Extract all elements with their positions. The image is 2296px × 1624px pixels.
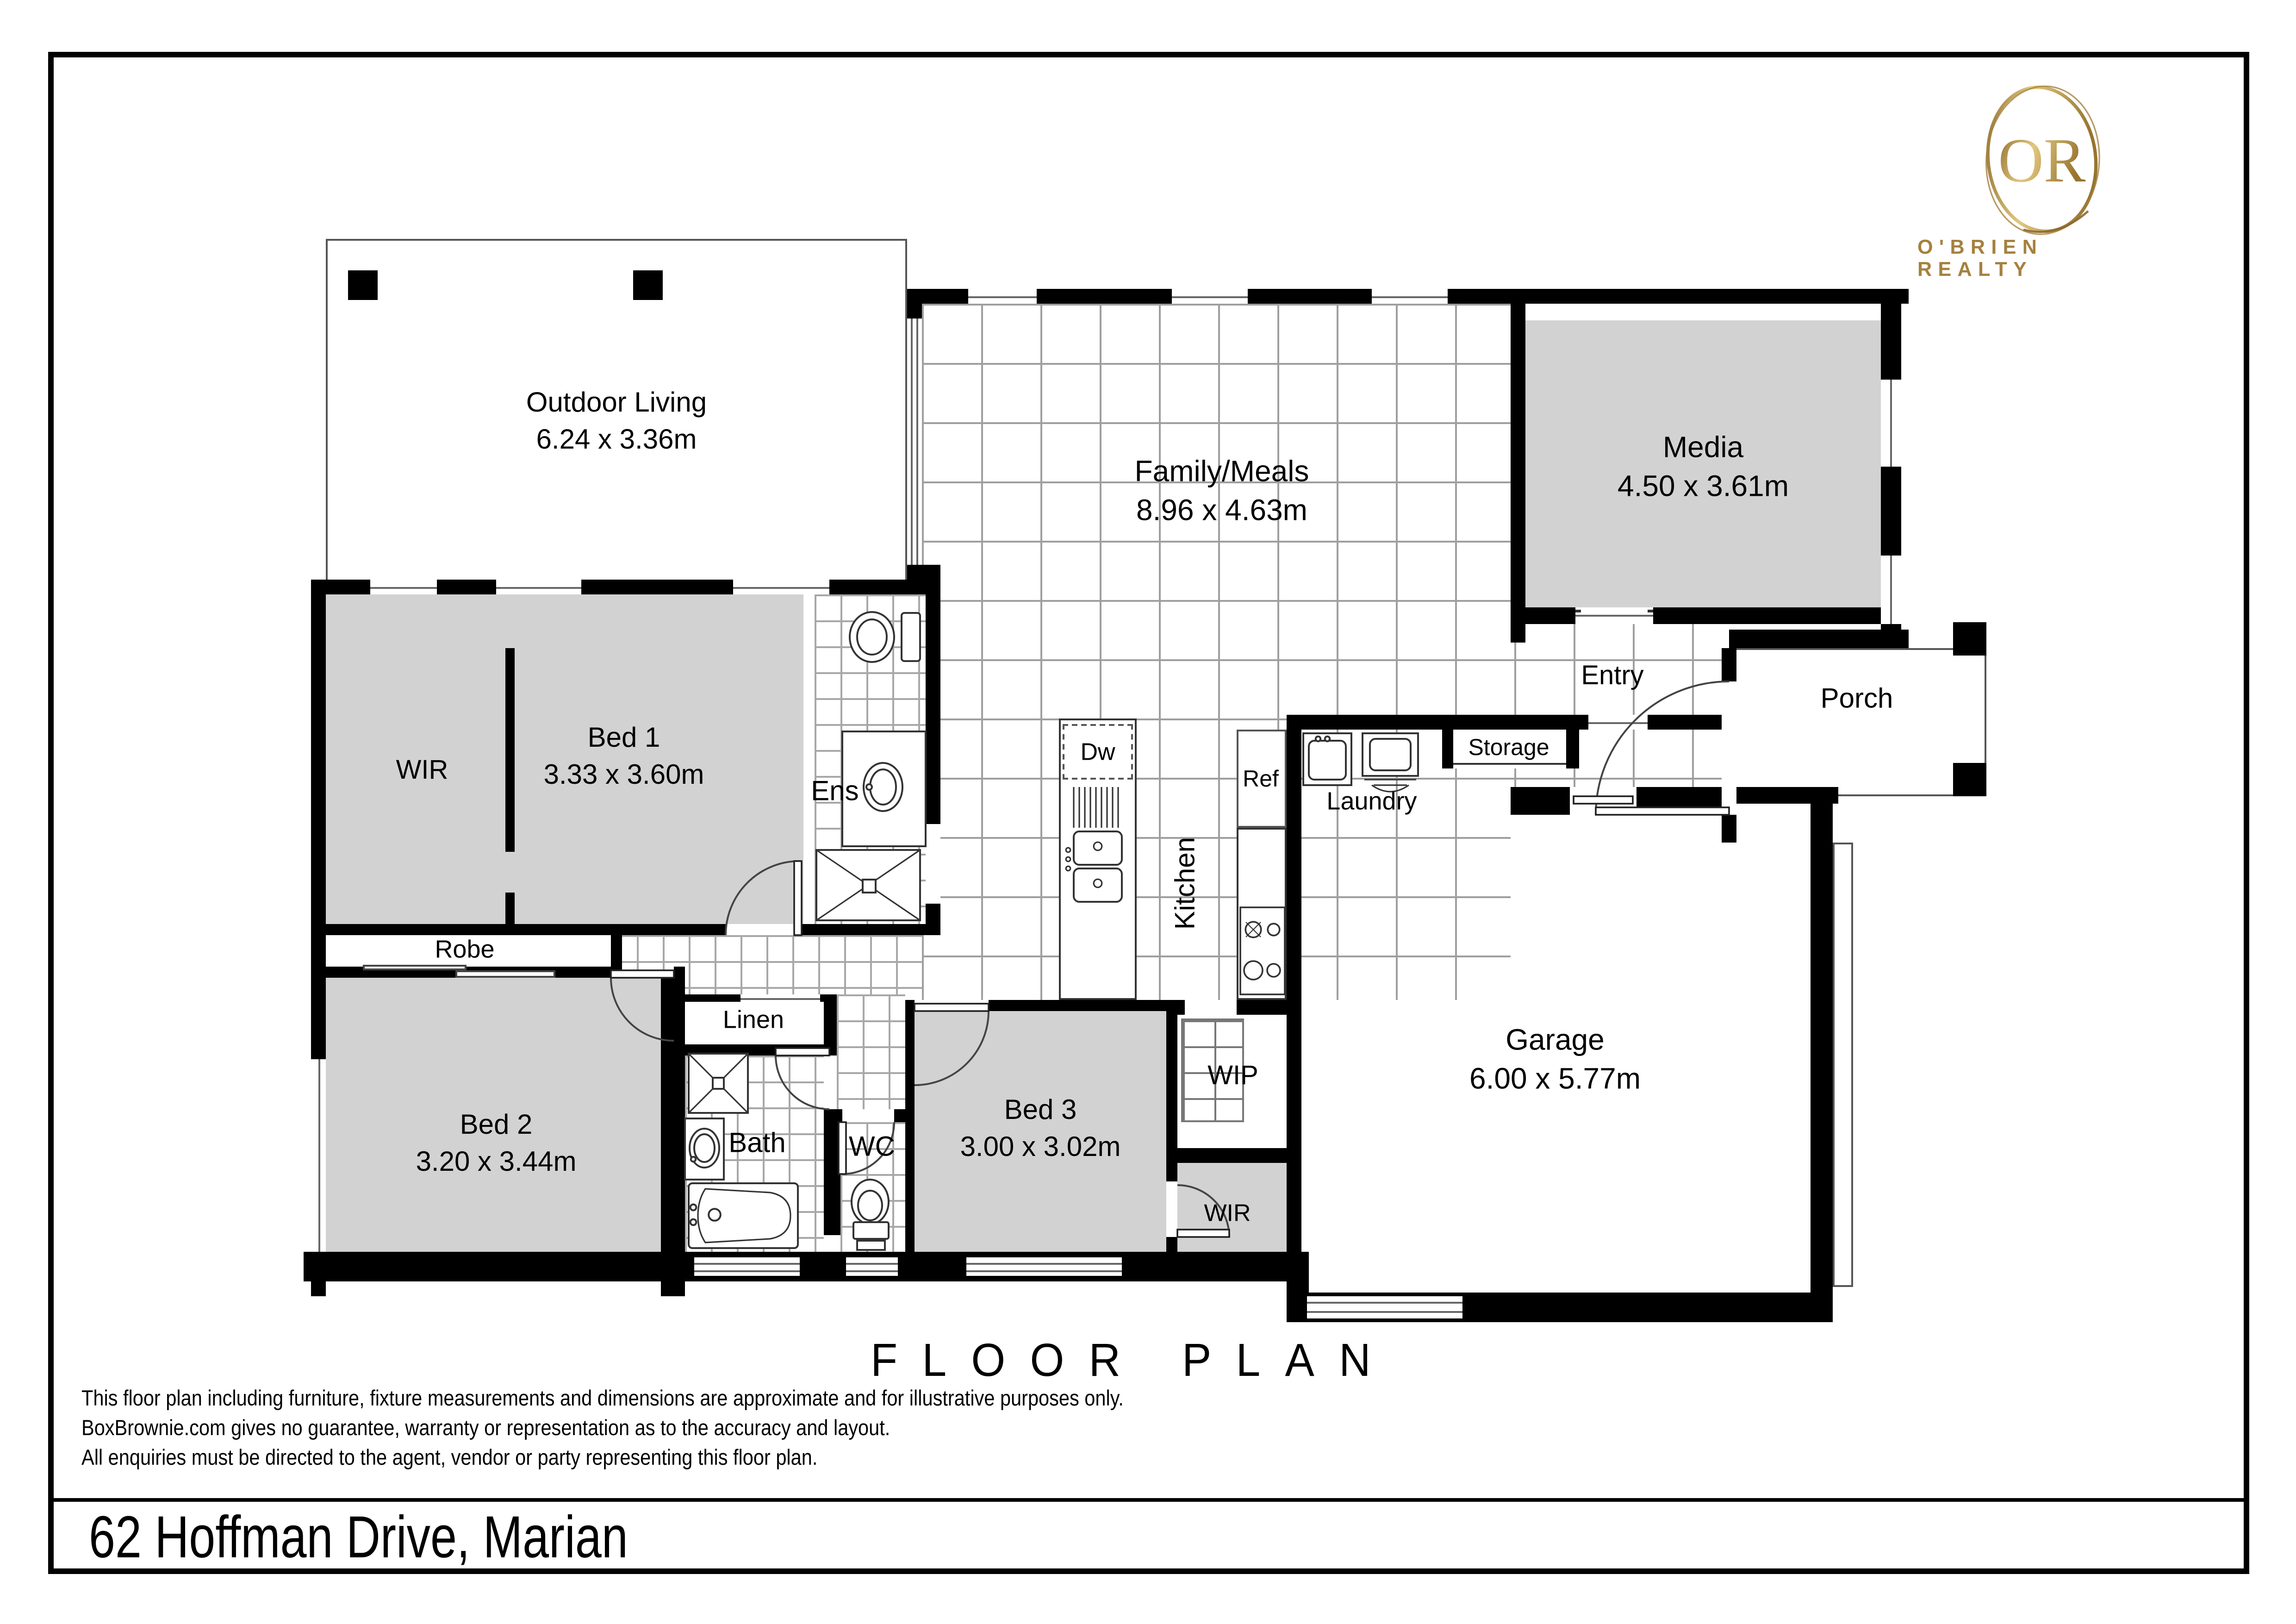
wc-door-leaf bbox=[839, 1122, 846, 1174]
room-label-porch: Porch bbox=[1821, 681, 1893, 718]
front-door-arc bbox=[1596, 681, 1729, 815]
bed2-door-arc bbox=[611, 978, 674, 1041]
room-label-bed2: Bed 2 3.20 x 3.44m bbox=[416, 1108, 577, 1181]
room-dims: 6.00 x 5.77m bbox=[1469, 1061, 1641, 1100]
room-label-wc: WC bbox=[849, 1130, 895, 1166]
disclaimer-line: This floor plan including furniture, fix… bbox=[81, 1385, 1124, 1414]
room-label-bath: Bath bbox=[728, 1126, 785, 1162]
room-label-storage: Storage bbox=[1468, 733, 1549, 763]
room-dims: 6.24 x 3.36m bbox=[526, 422, 707, 459]
disclaimer-line: BoxBrownie.com gives no guarantee, warra… bbox=[81, 1414, 1124, 1443]
room-name: Bed 1 bbox=[544, 721, 704, 757]
room-label-bed1: Bed 1 3.33 x 3.60m bbox=[544, 721, 704, 794]
room-name: Garage bbox=[1469, 1022, 1641, 1061]
disclaimer-line: All enquiries must be directed to the ag… bbox=[81, 1443, 1124, 1473]
bed2-door-leaf bbox=[611, 970, 674, 978]
cooktop bbox=[1240, 907, 1285, 994]
room-name: Bed 3 bbox=[960, 1093, 1121, 1130]
room-label-linen: Linen bbox=[723, 1004, 784, 1037]
room-label-garage: Garage 6.00 x 5.77m bbox=[1469, 1022, 1641, 1100]
bathtub-faucet bbox=[709, 1209, 721, 1221]
room-name: Family/Meals bbox=[1135, 454, 1309, 493]
bed3-door-arc bbox=[915, 1011, 989, 1085]
floor-plan-page: Outdoor Living 6.24 x 3.36m Family/Meals… bbox=[0, 0, 2296, 1624]
room-label-dw: Dw bbox=[1080, 736, 1115, 768]
room-label-outdoor-living: Outdoor Living 6.24 x 3.36m bbox=[526, 386, 707, 459]
disclaimer-text: This floor plan including furniture, fix… bbox=[81, 1385, 1124, 1473]
room-label-laundry: Laundry bbox=[1326, 785, 1417, 818]
wc-toilet-tank bbox=[853, 1222, 889, 1239]
room-dims: 4.50 x 3.61m bbox=[1618, 468, 1789, 507]
front-door-leaf bbox=[1596, 807, 1729, 815]
ens-toilet-tank bbox=[902, 613, 920, 661]
room-dims: 3.00 x 3.02m bbox=[960, 1130, 1121, 1166]
room-dims: 8.96 x 4.63m bbox=[1135, 493, 1309, 531]
kitchen-sink-bowl bbox=[1074, 831, 1122, 865]
room-label-robe: Robe bbox=[435, 933, 494, 966]
room-label-ens: Ens bbox=[811, 774, 859, 811]
wir3-door-leaf bbox=[1177, 1230, 1229, 1237]
logo-wordmark: O'BRIEN REALTY bbox=[1917, 237, 2166, 281]
bed1-door-leaf bbox=[794, 861, 802, 935]
room-label-kitchen: Kitchen bbox=[1168, 837, 1205, 930]
room-label-bed3: Bed 3 3.00 x 3.02m bbox=[960, 1093, 1121, 1166]
room-label-family-meals: Family/Meals 8.96 x 4.63m bbox=[1135, 454, 1309, 532]
garage-internal-door-leaf bbox=[1574, 796, 1633, 804]
room-dims: 3.20 x 3.44m bbox=[416, 1144, 577, 1181]
room-label-wir-bed1: WIR bbox=[396, 755, 448, 790]
bath-door-leaf bbox=[776, 1048, 829, 1056]
room-label-media: Media 4.50 x 3.61m bbox=[1618, 430, 1789, 508]
room-label-wir-bed3: WIR bbox=[1204, 1197, 1251, 1229]
room-name: Media bbox=[1618, 430, 1789, 468]
address-divider-line bbox=[48, 1498, 2249, 1502]
room-label-wip: WIP bbox=[1207, 1060, 1258, 1096]
room-dims: 3.33 x 3.60m bbox=[544, 757, 704, 794]
bed1-door-arc bbox=[726, 861, 800, 935]
room-name: Outdoor Living bbox=[526, 386, 707, 422]
bath-door-arc bbox=[776, 1056, 829, 1109]
room-label-ref: Ref bbox=[1243, 764, 1279, 795]
room-name: Bed 2 bbox=[416, 1108, 577, 1144]
property-address: 62 Hoffman Drive, Marian bbox=[89, 1504, 628, 1570]
bed3-door-leaf bbox=[915, 1004, 989, 1011]
obrien-realty-logo-icon: OR bbox=[1912, 67, 2172, 252]
logo-monogram: OR bbox=[1998, 126, 2086, 195]
kitchen-sink-bowl bbox=[1074, 868, 1122, 902]
room-label-entry: Entry bbox=[1581, 660, 1643, 696]
plan-title: FLOOR PLAN bbox=[871, 1335, 1395, 1389]
